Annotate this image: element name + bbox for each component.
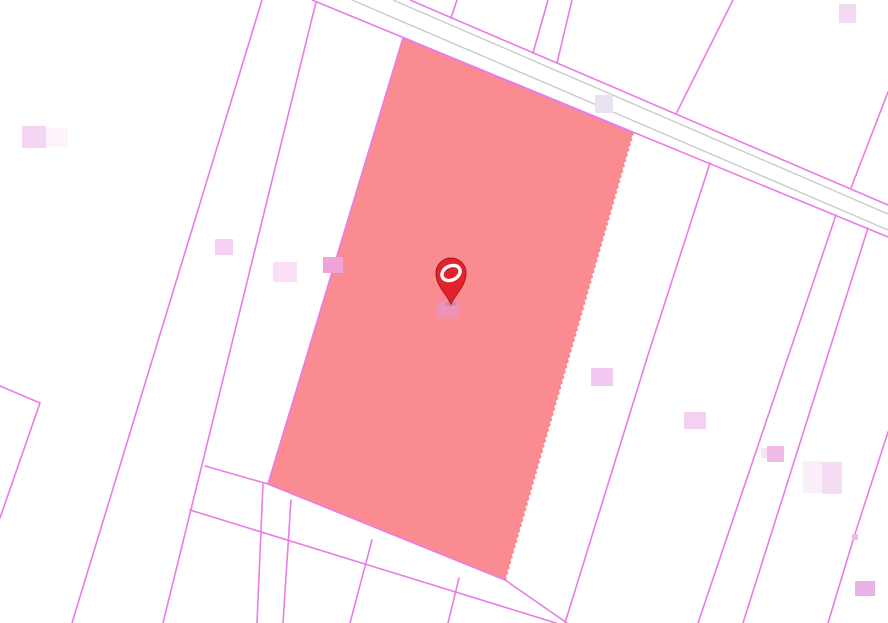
building-footprint — [822, 462, 842, 494]
map-viewport[interactable] — [0, 0, 888, 623]
building-footprint — [215, 239, 233, 255]
building-footprint — [761, 448, 767, 458]
building-footprint — [323, 257, 343, 273]
building-footprint — [839, 4, 856, 23]
building-footprint — [591, 368, 613, 386]
building-footprint — [803, 461, 822, 493]
building-footprint — [767, 446, 784, 462]
building-footprint — [855, 581, 875, 596]
building-footprint — [22, 126, 46, 148]
building-footprint — [46, 128, 68, 147]
building-footprint — [273, 262, 297, 282]
building-footprint — [684, 412, 706, 429]
building-footprint — [595, 95, 613, 113]
map-canvas[interactable] — [0, 0, 888, 623]
building-footprint — [852, 534, 858, 540]
